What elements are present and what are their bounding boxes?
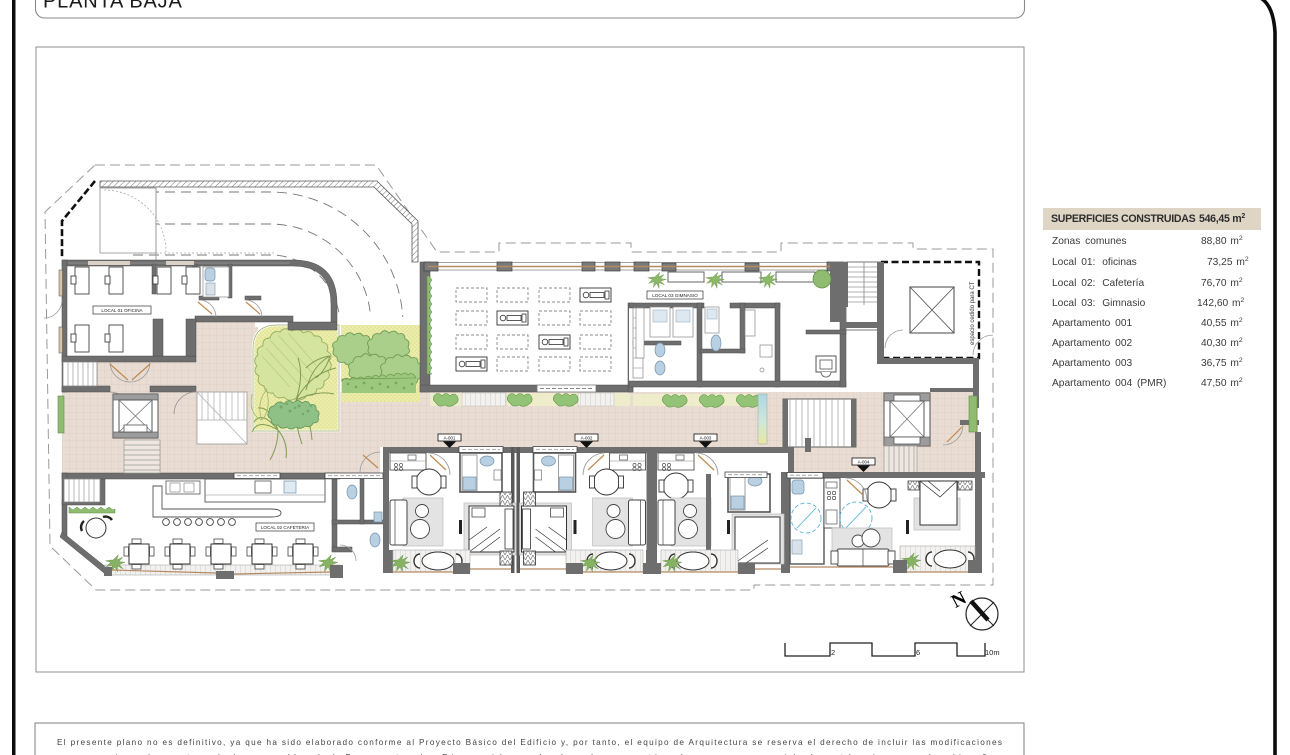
svg-text:El presente plano no es d: El presente plano no es definitivo, ya q…	[57, 738, 1002, 747]
svg-text:Apartamento 001: Apartamento 001	[1052, 318, 1133, 329]
svg-text:76,70 m2: 76,70 m2	[1201, 277, 1243, 289]
svg-text:LOCAL 02 CAFETERIA: LOCAL 02 CAFETERIA	[261, 525, 310, 530]
svg-text:A-001: A-001	[444, 436, 456, 441]
svg-text:142,60 m2: 142,60 m2	[1197, 297, 1245, 309]
svg-text:Local 01: oficinas: Local 01: oficinas	[1052, 257, 1137, 268]
svg-text:SUPERFICIES CONSTRUIDAS: SUPERFICIES CONSTRUIDAS	[1051, 213, 1196, 225]
svg-text:Apartamento 004 (PMR): Apartamento 004 (PMR)	[1052, 378, 1166, 389]
svg-text:6: 6	[916, 648, 920, 657]
svg-text:espacio cedido para CT: espacio cedido para CT	[970, 281, 976, 345]
svg-text:A-002: A-002	[581, 436, 593, 441]
svg-text:A-003: A-003	[700, 436, 712, 441]
svg-text:A-004: A-004	[858, 460, 870, 465]
svg-text:Apartamento 003: Apartamento 003	[1052, 358, 1133, 369]
svg-text:47,50 m2: 47,50 m2	[1201, 377, 1243, 389]
svg-text:Zonas comunes: Zonas comunes	[1052, 236, 1127, 247]
svg-text:88,80 m2: 88,80 m2	[1201, 235, 1243, 247]
svg-text:2: 2	[831, 648, 835, 657]
svg-text:36,75 m2: 36,75 m2	[1201, 357, 1243, 369]
svg-text:LOCAL 01 OFICINA: LOCAL 01 OFICINA	[101, 308, 143, 313]
svg-text:LOCAL 03 GIMNASIO: LOCAL 03 GIMNASIO	[652, 293, 698, 298]
svg-text:40,30 m2: 40,30 m2	[1201, 337, 1243, 349]
svg-text:PLANTA BAJA: PLANTA BAJA	[43, 0, 183, 13]
svg-text:546,45 m2: 546,45 m2	[1199, 213, 1245, 225]
svg-text:Apartamento 002: Apartamento 002	[1052, 338, 1133, 349]
svg-text:40,55 m2: 40,55 m2	[1201, 317, 1243, 329]
svg-text:10m: 10m	[985, 648, 1000, 657]
svg-text:73,25 m2: 73,25 m2	[1207, 256, 1249, 268]
